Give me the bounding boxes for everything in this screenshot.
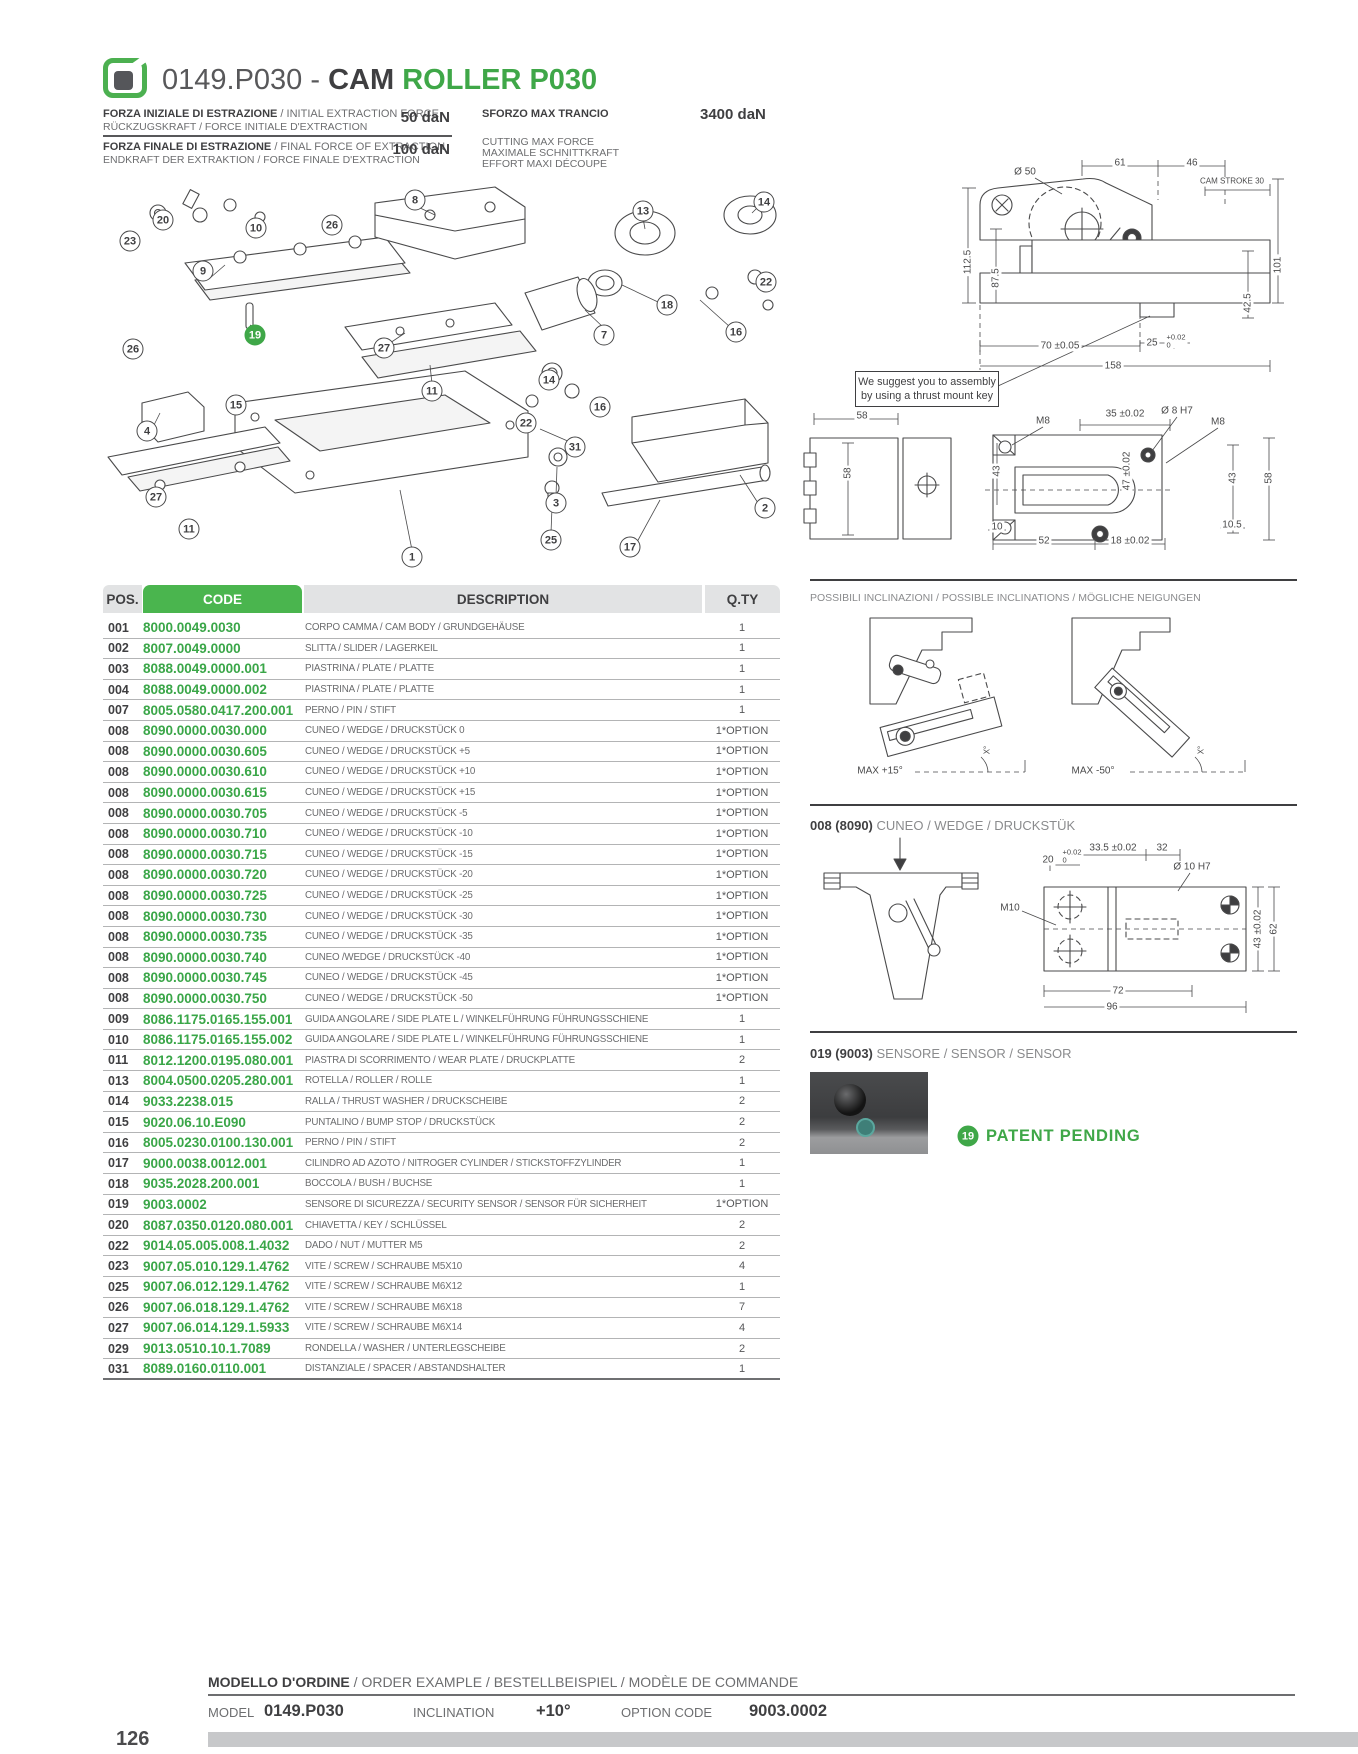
dim-label: 62 [1269,921,1280,936]
cell-qty: 2 [704,1137,780,1149]
cell-code: 8090.0000.0030.715 [143,847,305,862]
spec-final-force-value: 100 daN [390,141,450,158]
cell-code: 9007.06.014.129.1.5933 [143,1320,305,1335]
cell-code: 8005.0580.0417.200.001 [143,703,305,718]
order-example-title: MODELLO D'ORDINE / ORDER EXAMPLE / BESTE… [208,1674,798,1690]
dim-label: 112.5 [963,248,974,276]
table-row: 0229014.05.005.008.1.4032DADO / NUT / MU… [103,1236,780,1257]
part-balloon-9: 9 [193,261,214,282]
cell-desc: GUIDA ANGOLARE / SIDE PLATE L / WINKELFÜ… [305,1034,704,1045]
cell-qty: 1 [704,1013,780,1025]
cell-code: 8090.0000.0030.725 [143,888,305,903]
footer-bar [208,1732,1358,1747]
section-divider [810,804,1297,806]
cell-pos: 001 [103,621,143,635]
part-balloon-23: 23 [120,231,141,252]
cell-desc: PIASTRA DI SCORRIMENTO / WEAR PLATE / DR… [305,1055,704,1066]
sensor-section-title: 019 (9003) SENSORE / SENSOR / SENSOR [810,1046,1072,1061]
patent-pending-label: PATENT PENDING [986,1127,1141,1146]
cell-qty: 1 [704,1363,780,1375]
section-divider [810,1031,1297,1033]
cell-qty: 1*OPTION [704,951,780,963]
cell-pos: 008 [103,930,143,944]
cell-pos: 008 [103,950,143,964]
cell-pos: 004 [103,683,143,697]
cell-qty: 2 [704,1343,780,1355]
cell-desc: PIASTRINA / PLATE / PLATTE [305,663,704,674]
cell-qty: 2 [704,1054,780,1066]
table-row: 0088090.0000.0030.000CUNEO / WEDGE / DRU… [103,721,780,742]
cell-desc: CUNEO / WEDGE / DRUCKSTÜCK -50 [305,993,704,1004]
table-row: 0179000.0038.0012.001CILINDRO AD AZOTO /… [103,1153,780,1174]
cell-desc: PIASTRINA / PLATE / PLATTE [305,684,704,695]
cell-qty: 7 [704,1301,780,1313]
cell-code: 8086.1175.0165.155.001 [143,1012,305,1027]
cell-code: 9035.2028.200.001 [143,1176,305,1191]
table-row: 0208087.0350.0120.080.001CHIAVETTA / KEY… [103,1215,780,1236]
cell-qty: 1 [704,1075,780,1087]
cell-desc: SLITTA / SLIDER / LAGERKEIL [305,643,704,654]
inclination-max-plus: MAX +15° [855,766,904,777]
cell-qty: 2 [704,1116,780,1128]
part-balloon-22: 22 [756,272,777,293]
sensor-photo [810,1072,928,1154]
cell-qty: 4 [704,1260,780,1272]
part-balloon-25: 25 [541,530,562,551]
table-row: 0048088.0049.0000.002PIASTRINA / PLATE /… [103,680,780,701]
part-balloon-11: 11 [179,519,200,540]
cell-qty: 1 [704,1178,780,1190]
part-balloon-22: 22 [516,413,537,434]
cell-desc: DADO / NUT / MUTTER M5 [305,1240,704,1251]
cell-qty: 2 [704,1219,780,1231]
part-balloon-4: 4 [137,421,158,442]
cell-code: 8088.0049.0000.001 [143,661,305,676]
cell-pos: 018 [103,1177,143,1191]
part-balloon-26: 26 [322,215,343,236]
table-row: 0028007.0049.0000SLITTA / SLIDER / LAGER… [103,639,780,660]
dim-label: 18 ±0.02 [1109,536,1152,547]
cell-qty: 1 [704,622,780,634]
parts-table-body: 0018000.0049.0030CORPO CAMMA / CAM BODY … [103,618,780,1380]
part-balloon-16: 16 [726,322,747,343]
dim-label: 10.5 [1220,520,1243,531]
cell-desc: BOCCOLA / BUSH / BUCHSE [305,1178,704,1189]
assembly-note: We suggest you to assembly by using a th… [855,371,999,407]
cell-desc: VITE / SCREW / SCHRAUBE M6X12 [305,1281,704,1292]
cell-pos: 029 [103,1342,143,1356]
dim-label: M10 [998,903,1021,914]
order-inclination-value: +10° [536,1702,571,1721]
section-divider [810,579,1297,581]
part-balloon-3: 3 [546,493,567,514]
page-number: 126 [116,1728,149,1751]
cell-code: 8090.0000.0030.750 [143,991,305,1006]
max-cut-title: SFORZO MAX TRANCIO [482,108,609,120]
spec-initial-force-value: 50 daN [390,109,450,126]
header-description: DESCRIPTION [304,585,702,613]
part-balloon-8: 8 [405,190,426,211]
cell-code: 8090.0000.0030.605 [143,744,305,759]
part-balloon-31: 31 [565,437,586,458]
part-balloon-2: 2 [755,498,776,519]
order-option-label: OPTION CODE [621,1705,712,1720]
cell-desc: CUNEO / WEDGE / DRUCKSTÜCK +15 [305,787,704,798]
cell-qty: 1 [704,684,780,696]
table-row: 0159020.06.10.E090PUNTALINO / BUMP STOP … [103,1112,780,1133]
cell-pos: 011 [103,1053,143,1067]
cell-qty: 1 [704,663,780,675]
wedge-section-title: 008 (8090) CUNEO / WEDGE / DRUCKSTÜK [810,818,1075,833]
cell-desc: VITE / SCREW / SCHRAUBE M6X18 [305,1302,704,1313]
cell-qty: 1*OPTION [704,848,780,860]
cell-code: 8000.0049.0030 [143,620,305,635]
dim-label: 87.5 [991,266,1002,289]
cell-desc: PERNO / PIN / STIFT [305,705,704,716]
cell-code: 8087.0350.0120.080.001 [143,1218,305,1233]
cell-code: 9020.06.10.E090 [143,1115,305,1130]
cell-code: 9003.0002 [143,1197,305,1212]
table-row: 0038088.0049.0000.001PIASTRINA / PLATE /… [103,659,780,680]
cell-qty: 1*OPTION [704,972,780,984]
tol-bottom: 0 [1063,856,1082,864]
cell-pos: 022 [103,1239,143,1253]
table-row: 0088090.0000.0030.745CUNEO / WEDGE / DRU… [103,968,780,989]
exploded-view-drawing [100,185,800,580]
table-row: 0299013.0510.10.1.7089RONDELLA / WASHER … [103,1339,780,1360]
cell-qty: 1 [704,704,780,716]
part-balloon-7: 7 [594,325,615,346]
cell-desc: CUNEO / WEDGE / DRUCKSTÜCK -10 [305,828,704,839]
dim-label: 32 [1154,843,1169,854]
front-and-section-view-drawing [800,405,1300,555]
cell-pos: 008 [103,786,143,800]
cell-pos: 019 [103,1197,143,1211]
cell-pos: 009 [103,1012,143,1026]
part-balloon-15: 15 [226,395,247,416]
cell-desc: ROTELLA / ROLLER / ROLLE [305,1075,704,1086]
dim-label: 10 [989,522,1004,533]
part-balloon-17: 17 [620,537,641,558]
table-row: 0138004.0500.0205.280.001ROTELLA / ROLLE… [103,1071,780,1092]
cell-desc: PUNTALINO / BUMP STOP / DRUCKSTÜCK [305,1117,704,1128]
dim-label: 58 [854,411,869,422]
table-row: 0088090.0000.0030.750CUNEO / WEDGE / DRU… [103,989,780,1010]
cell-qty: 1*OPTION [704,1198,780,1210]
cell-desc: CUNEO / WEDGE / DRUCKSTÜCK -5 [305,808,704,819]
dim-label: 43 ±0.02 [1253,908,1264,951]
cell-code: 8090.0000.0030.000 [143,723,305,738]
cell-pos: 003 [103,662,143,676]
cell-desc: DISTANZIALE / SPACER / ABSTANDSHALTER [305,1363,704,1374]
cell-code: 8090.0000.0030.735 [143,929,305,944]
dim-label: Ø 8 H7 [1159,406,1195,417]
cell-pos: 008 [103,971,143,985]
cell-desc: CUNEO / WEDGE / DRUCKSTÜCK -35 [305,931,704,942]
cell-pos: 008 [103,868,143,882]
cell-pos: 008 [103,889,143,903]
dim-label: 72 [1110,986,1125,997]
dim-label: 35 ±0.02 [1104,409,1147,420]
order-model-label: MODEL [208,1705,254,1720]
dim-tolerance: +0.02 0 [1061,849,1084,864]
table-row: 0088090.0000.0030.715CUNEO / WEDGE / DRU… [103,845,780,866]
table-row: 0239007.05.010.129.1.4762VITE / SCREW / … [103,1256,780,1277]
cell-qty: 1 [704,1157,780,1169]
cell-desc: CHIAVETTA / KEY / SCHLÜSSEL [305,1220,704,1231]
cell-desc: CUNEO / WEDGE / DRUCKSTÜCK -25 [305,890,704,901]
dim-label: CAM STROKE 30 [1198,178,1266,187]
cell-qty: 1*OPTION [704,890,780,902]
cell-pos: 008 [103,909,143,923]
cell-qty: 1 [704,642,780,654]
spec-initial-force-line2: RÜCKZUGSKRAFT / FORCE INITIALE D'EXTRACT… [103,121,367,133]
cell-desc: CUNEO / WEDGE / DRUCKSTÜCK 0 [305,725,704,736]
cell-qty: 1*OPTION [704,725,780,737]
dim-label: 42.5 [1243,291,1254,314]
cell-code: 9014.05.005.008.1.4032 [143,1238,305,1253]
sensor-label: SENSORE / SENSOR / SENSOR [877,1046,1072,1061]
spec-final-force-line2: ENDKRAFT DER EXTRAKTION / FORCE FINALE D… [103,154,420,166]
table-row: 0318089.0160.0110.001DISTANZIALE / SPACE… [103,1359,780,1380]
dim-label: 58 [1264,470,1275,485]
table-row: 0088090.0000.0030.710CUNEO / WEDGE / DRU… [103,824,780,845]
inclinations-title: POSSIBILI INCLINAZIONI / POSSIBLE INCLIN… [810,592,1201,604]
angle-variable-label: X° [1198,744,1207,757]
dim-label: 47 ±0.02 [1122,450,1133,493]
dim-label: Ø 10 H7 [1171,862,1212,873]
dim-label: 52 [1036,536,1051,547]
brand-logo-notch [129,56,146,71]
cell-code: 9007.06.012.129.1.4762 [143,1279,305,1294]
cell-desc: CUNEO / WEDGE / DRUCKSTÜCK -45 [305,972,704,983]
cell-qty: 1 [704,1281,780,1293]
table-row: 0088090.0000.0030.730CUNEO / WEDGE / DRU… [103,906,780,927]
cell-code: 8090.0000.0030.705 [143,806,305,821]
cell-desc: CUNEO / WEDGE / DRUCKSTÜCK -30 [305,911,704,922]
table-row: 0088090.0000.0030.605CUNEO / WEDGE / DRU… [103,742,780,763]
cell-code: 8088.0049.0000.002 [143,682,305,697]
brand-logo-icon [103,58,147,98]
cell-pos: 016 [103,1136,143,1150]
table-row: 0189035.2028.200.001BOCCOLA / BUSH / BUC… [103,1174,780,1195]
brand-logo-inner-square [114,71,133,90]
cell-qty: 2 [704,1095,780,1107]
sensor-photo-hole [834,1084,866,1116]
max-cut-l3: EFFORT MAXI DÉCOUPE [482,158,607,170]
cell-code: 8089.0160.0110.001 [143,1361,305,1376]
title-cam: CAM [328,64,402,96]
cell-desc: SENSORE DI SICUREZZA / SECURITY SENSOR /… [305,1199,704,1210]
assembly-note-line1: We suggest you to assembly [858,375,996,389]
dim-label: 70 ±0.05 [1039,341,1082,352]
cell-code: 8090.0000.0030.720 [143,867,305,882]
title-code: 0149.P030 - [162,64,328,96]
table-row: 0018000.0049.0030CORPO CAMMA / CAM BODY … [103,618,780,639]
cell-qty: 1*OPTION [704,910,780,922]
order-model-value: 0149.P030 [264,1702,344,1721]
table-row: 0199003.0002SENSORE DI SICUREZZA / SECUR… [103,1195,780,1216]
cell-desc: CUNEO / WEDGE / DRUCKSTÜCK +10 [305,766,704,777]
cell-code: 8090.0000.0030.710 [143,826,305,841]
table-row: 0149033.2238.015RALLA / THRUST WASHER / … [103,1092,780,1113]
table-row: 0088090.0000.0030.705CUNEO / WEDGE / DRU… [103,803,780,824]
cell-code: 9033.2238.015 [143,1094,305,1109]
dim-label: 43 [1228,470,1239,485]
sensor-pos: 019 (9003) [810,1046,873,1061]
cell-qty: 1*OPTION [704,745,780,757]
parts-table-header: POS. CODE DESCRIPTION Q.TY [103,585,780,613]
part-balloon-16: 16 [590,397,611,418]
cell-qty: 1*OPTION [704,931,780,943]
page-title: 0149.P030 - CAM ROLLER P030 [162,64,597,97]
spec2-bold: FORZA FINALE DI ESTRAZIONE [103,141,271,153]
dim-label: 20 [1040,855,1055,866]
cell-pos: 008 [103,765,143,779]
cell-pos: 014 [103,1094,143,1108]
cell-desc: CORPO CAMMA / CAM BODY / GRUNDGEHÄUSE [305,622,704,633]
order-option-value: 9003.0002 [749,1702,827,1721]
table-row: 0088090.0000.0030.735CUNEO / WEDGE / DRU… [103,927,780,948]
part-balloon-14: 14 [539,370,560,391]
header-pos: POS. [103,585,142,613]
part-balloon-13: 13 [633,201,654,222]
dim-tolerance: +0.02 0 [1165,334,1188,349]
spec1-bold: FORZA INIZIALE DI ESTRAZIONE [103,108,277,120]
part-balloon-1: 1 [402,547,423,568]
part-balloon-18: 18 [657,295,678,316]
cell-qty: 4 [704,1322,780,1334]
cell-pos: 017 [103,1156,143,1170]
dim-label: 96 [1104,1002,1119,1013]
table-row: 0108086.1175.0165.155.002GUIDA ANGOLARE … [103,1030,780,1051]
cell-pos: 008 [103,724,143,738]
dim-label: 101 [1273,255,1284,276]
table-row: 0098086.1175.0165.155.001GUIDA ANGOLARE … [103,1009,780,1030]
cell-pos: 025 [103,1280,143,1294]
cell-pos: 008 [103,827,143,841]
cell-desc: CUNEO / WEDGE / DRUCKSTÜCK -20 [305,869,704,880]
cell-pos: 008 [103,744,143,758]
inclination-max-minus: MAX -50° [1070,766,1117,777]
cell-qty: 1*OPTION [704,869,780,881]
cell-pos: 015 [103,1115,143,1129]
spec-divider [103,135,452,137]
cell-desc: PERNO / PIN / STIFT [305,1137,704,1148]
part-balloon-10: 10 [246,218,267,239]
part-balloon-14: 14 [754,192,775,213]
cell-pos: 013 [103,1074,143,1088]
order-inclination-label: INCLINATION [413,1705,494,1720]
cell-code: 8007.0049.0000 [143,641,305,656]
dim-label: M8 [1209,417,1227,428]
cell-code: 9013.0510.10.1.7089 [143,1341,305,1356]
cell-code: 8090.0000.0030.745 [143,970,305,985]
cell-desc: CUNEO / WEDGE / DRUCKSTÜCK +5 [305,746,704,757]
cell-code: 8090.0000.0030.610 [143,764,305,779]
order-title-rest: / ORDER EXAMPLE / BESTELLBEISPIEL / MODÈ… [350,1674,798,1690]
table-row: 0279007.06.014.129.1.5933VITE / SCREW / … [103,1318,780,1339]
wedge-pos: 008 (8090) [810,818,873,833]
title-model: ROLLER P030 [402,64,597,96]
cell-code: 9000.0038.0012.001 [143,1156,305,1171]
cell-desc: CUNEO / WEDGE / DRUCKSTÜCK -15 [305,849,704,860]
dim-label: 33.5 ±0.02 [1087,843,1138,854]
spec-initial-force-line1: FORZA INIZIALE DI ESTRAZIONE / INITIAL E… [103,108,439,120]
cell-desc: RALLA / THRUST WASHER / DRUCKSCHEIBE [305,1096,704,1107]
cell-qty: 2 [704,1240,780,1252]
cell-code: 9007.06.018.129.1.4762 [143,1300,305,1315]
cell-pos: 010 [103,1033,143,1047]
dim-label: 61 [1112,158,1127,169]
cell-code: 8086.1175.0165.155.002 [143,1032,305,1047]
tol-bottom: 0 [1167,341,1186,349]
part-balloon-19: 19 [245,325,266,346]
catalog-page: 0149.P030 - CAM ROLLER P030 FORZA INIZIA… [0,0,1358,1754]
cell-pos: 031 [103,1362,143,1376]
cell-qty: 1*OPTION [704,807,780,819]
cell-qty: 1*OPTION [704,766,780,778]
header-code: CODE [143,585,302,613]
table-row: 0088090.0000.0030.740CUNEO /WEDGE / DRUC… [103,948,780,969]
cell-pos: 002 [103,641,143,655]
parts-table: POS. CODE DESCRIPTION Q.TY 0018000.0049.… [103,585,780,1380]
cell-desc: CUNEO /WEDGE / DRUCKSTÜCK -40 [305,952,704,963]
dim-label: 43 [992,463,1003,478]
cell-qty: 1*OPTION [704,992,780,1004]
dim-label: 58 [843,465,854,480]
assembly-note-line2: by using a thrust mount key [861,389,993,403]
part-balloon-27: 27 [374,338,395,359]
table-row: 0088090.0000.0030.610CUNEO / WEDGE / DRU… [103,762,780,783]
order-divider [208,1694,1295,1696]
cell-code: 8012.1200.0195.080.001 [143,1053,305,1068]
cell-qty: 1*OPTION [704,828,780,840]
table-row: 0088090.0000.0030.725CUNEO / WEDGE / DRU… [103,886,780,907]
table-row: 0269007.06.018.129.1.4762VITE / SCREW / … [103,1298,780,1319]
cell-pos: 008 [103,806,143,820]
cell-qty: 1*OPTION [704,787,780,799]
cell-pos: 007 [103,703,143,717]
cell-desc: RONDELLA / WASHER / UNTERLEGSCHEIBE [305,1343,704,1354]
wedge-label: CUNEO / WEDGE / DRUCKSTÜK [877,818,1076,833]
dim-label: Ø 50 [1012,167,1038,178]
cell-qty: 1 [704,1034,780,1046]
cell-pos: 008 [103,991,143,1005]
cell-pos: 023 [103,1259,143,1273]
cell-desc: CILINDRO AD AZOTO / NITROGER CYLINDER / … [305,1158,704,1169]
cell-code: 8090.0000.0030.740 [143,950,305,965]
table-row: 0259007.06.012.129.1.4762VITE / SCREW / … [103,1277,780,1298]
part-balloon-27: 27 [146,487,167,508]
cell-code: 8090.0000.0030.730 [143,909,305,924]
part-balloon-11: 11 [422,381,443,402]
cell-code: 8005.0230.0100.130.001 [143,1135,305,1150]
part-balloon-26: 26 [123,339,144,360]
table-row: 0078005.0580.0417.200.001PERNO / PIN / S… [103,700,780,721]
spec-max-cut-title: SFORZO MAX TRANCIO [482,108,609,120]
dim-label: 158 [1103,361,1124,372]
part-balloon-20: 20 [153,210,174,231]
cell-code: 8004.0500.0205.280.001 [143,1073,305,1088]
cell-pos: 008 [103,847,143,861]
cell-code: 8090.0000.0030.615 [143,785,305,800]
cell-code: 9007.05.010.129.1.4762 [143,1259,305,1274]
dim-label: 25 [1144,338,1159,349]
cell-pos: 026 [103,1300,143,1314]
cell-pos: 027 [103,1321,143,1335]
cell-desc: VITE / SCREW / SCHRAUBE M6X14 [305,1322,704,1333]
